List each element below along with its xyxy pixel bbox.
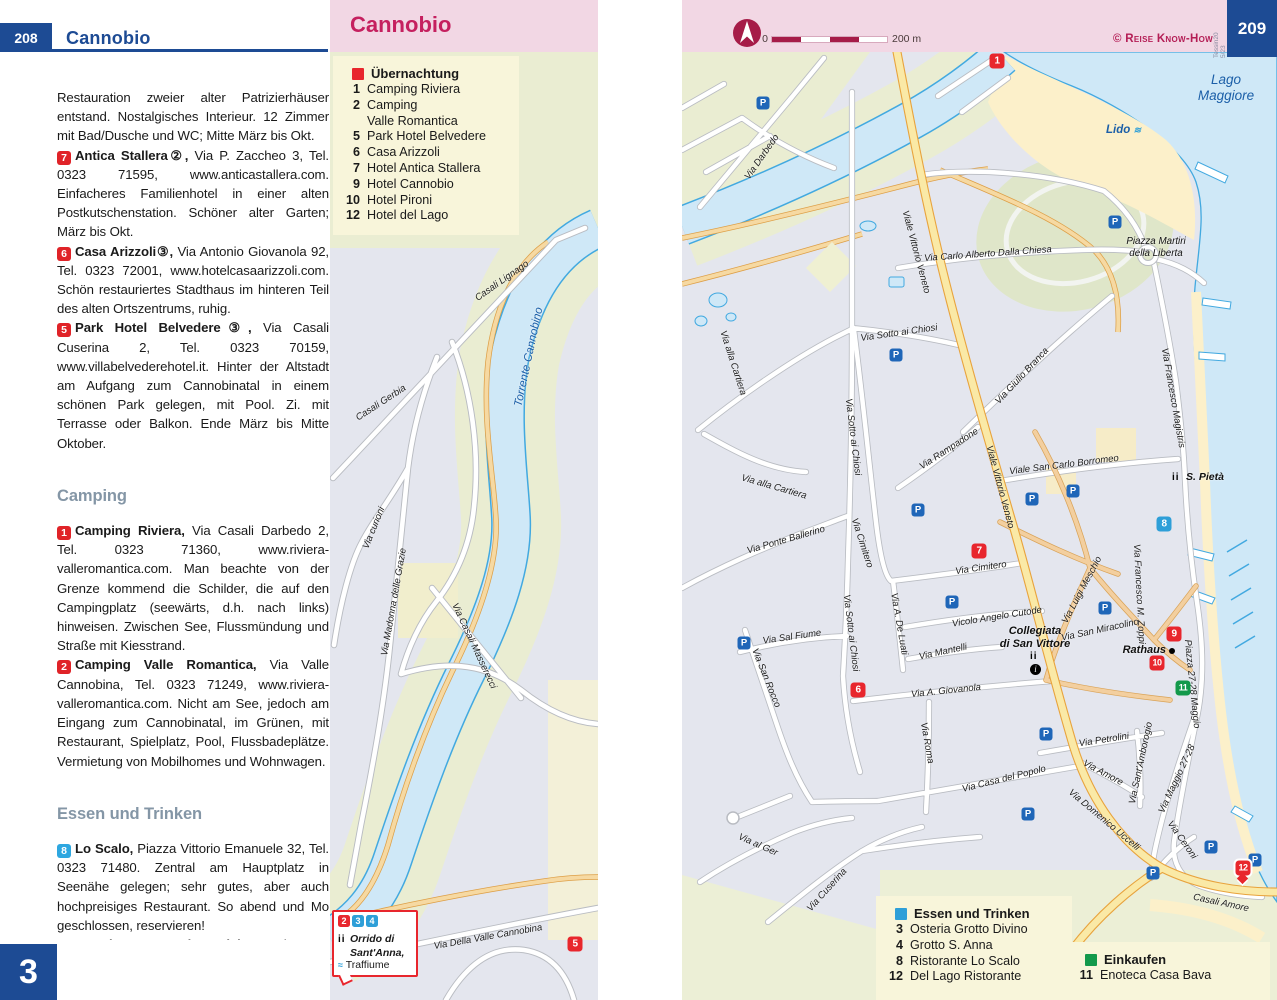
accommodation-color-swatch xyxy=(352,68,364,80)
legend-item: 3Osteria Grotto Divino xyxy=(876,922,1072,938)
parking-icon: P xyxy=(1026,493,1039,506)
sight-icon: ii xyxy=(338,934,346,945)
scale-zero-label: 0 xyxy=(752,33,768,45)
map-marker: 9 xyxy=(1167,627,1182,642)
legend-item-number: 4 xyxy=(876,938,903,954)
legend-item: 6Casa Arizzoli xyxy=(333,145,519,161)
callout-line3: ≈ Traffiume xyxy=(338,959,412,971)
legend-item-number: 3 xyxy=(876,922,903,938)
legend-accommodation: Übernachtung 1Camping Riviera2Camping Va… xyxy=(333,56,519,235)
parking-icon: P xyxy=(1109,216,1122,229)
callout-marker-badge: 4 xyxy=(366,915,378,927)
parking-icon: P xyxy=(1067,485,1080,498)
waterfall-icon: ≈ xyxy=(338,960,343,970)
parking-icon: P xyxy=(912,504,925,517)
parking-icon: P xyxy=(1099,602,1112,615)
legend-item-number: 1 xyxy=(333,82,360,98)
legend-item: 7Hotel Antica Stallera xyxy=(333,161,519,177)
legend-shopping: Einkaufen 11Enoteca Casa Bava xyxy=(1044,942,1270,1000)
legend-item: 10Hotel Pironi xyxy=(333,193,519,209)
legend-item: 4Grotto S. Anna xyxy=(876,938,1072,954)
legend-item-label: Hotel Cannobio xyxy=(367,177,454,193)
legend-food: Essen und Trinken 3Osteria Grotto Divino… xyxy=(876,896,1072,1000)
parking-icon: P xyxy=(1205,841,1218,854)
map-marker: 10 xyxy=(1150,656,1165,671)
legend-accommodation-title: Übernachtung xyxy=(333,66,519,82)
legend-item-label: Hotel Antica Stallera xyxy=(367,161,480,177)
scale-distance-label: 200 m xyxy=(892,33,921,45)
church-icon: ii xyxy=(1030,651,1038,662)
legend-item-number: 12 xyxy=(876,969,903,985)
map-marker: 5 xyxy=(568,937,583,952)
parking-icon: P xyxy=(757,97,770,110)
s-pieta-label: S. Pietà xyxy=(1186,471,1224,483)
legend-item: 1Camping Riviera xyxy=(333,82,519,98)
legend-item-label: Hotel del Lago xyxy=(367,208,448,224)
info-icon: i xyxy=(1030,664,1041,675)
map-marker: 7 xyxy=(972,544,987,559)
swimmer-icon: ≋ xyxy=(1133,125,1141,135)
legend-item: 12Hotel del Lago xyxy=(333,208,519,224)
legend-item-number: 9 xyxy=(333,177,360,193)
callout-line2: Sant'Anna, xyxy=(338,947,412,959)
callout-line1: Orrido di xyxy=(350,933,394,945)
edition-note: Tessin20 5/23 xyxy=(1213,32,1227,58)
parking-icon: P xyxy=(1040,728,1053,741)
legend-item-number: 12 xyxy=(333,208,360,224)
scale-bar xyxy=(772,37,887,43)
food-color-swatch xyxy=(895,908,907,920)
legend-item: 5Park Hotel Belvedere xyxy=(333,129,519,145)
legend-item: 9Hotel Cannobio xyxy=(333,177,519,193)
guidebook-spread: 208 Cannobio 3 Cannobio 0 200 m © Reise … xyxy=(0,0,1277,1000)
page-number-right: 209 xyxy=(1227,0,1277,57)
legend-item-label: Osteria Grotto Divino xyxy=(910,922,1028,938)
legend-item: 11Enoteca Casa Bava xyxy=(1044,968,1270,984)
piazza-martiri-label: Piazza Martiri della Liberta xyxy=(1120,236,1192,259)
parking-icon: P xyxy=(946,596,959,609)
legend-item: 8Ristorante Lo Scalo xyxy=(876,954,1072,970)
legend-item-number: 2 xyxy=(333,98,360,130)
legend-item-number: 10 xyxy=(333,193,360,209)
map-title: Cannobio xyxy=(350,12,451,38)
legend-item-number: 7 xyxy=(333,161,360,177)
callout-marker-badge: 2 xyxy=(338,915,350,927)
map-marker: 12 xyxy=(1236,861,1251,876)
parking-icon: P xyxy=(1147,867,1160,880)
legend-item-label: Hotel Pironi xyxy=(367,193,432,209)
legend-item-label: Ristorante Lo Scalo xyxy=(910,954,1020,970)
legend-food-title: Essen und Trinken xyxy=(876,906,1072,922)
legend-item-label: Camping Riviera xyxy=(367,82,460,98)
legend-item-label: Enoteca Casa Bava xyxy=(1100,968,1211,984)
legend-item: 12Del Lago Ristorante xyxy=(876,969,1072,985)
map-marker: 1 xyxy=(990,54,1005,69)
orrido-callout: 234 ii Orrido di Sant'Anna, ≈ Traffiume xyxy=(332,910,418,977)
parking-icon: P xyxy=(1022,808,1035,821)
rathaus-label: Rathaus xyxy=(1108,644,1166,656)
rathaus-dot xyxy=(1169,648,1175,654)
map-marker: 11 xyxy=(1176,681,1191,696)
legend-item-number: 11 xyxy=(1066,968,1093,984)
church-icon: ii xyxy=(1172,472,1180,483)
shopping-color-swatch xyxy=(1085,954,1097,966)
parking-icon: P xyxy=(738,637,751,650)
map-canvas xyxy=(0,0,1277,1000)
map-marker: 8 xyxy=(1157,517,1172,532)
legend-item: 2Camping Valle Romantica xyxy=(333,98,519,130)
legend-item-label: Del Lago Ristorante xyxy=(910,969,1021,985)
map-marker: 6 xyxy=(851,683,866,698)
lido-label: Lido ≋ xyxy=(1106,124,1141,136)
legend-item-number: 5 xyxy=(333,129,360,145)
legend-item-label: Camping Valle Romantica xyxy=(367,98,458,130)
legend-item-number: 8 xyxy=(876,954,903,970)
copyright-credit: © Reise Know-How xyxy=(1040,33,1213,45)
legend-item-label: Grotto S. Anna xyxy=(910,938,993,954)
parking-icon: P xyxy=(890,349,903,362)
legend-shopping-title: Einkaufen xyxy=(1044,952,1270,968)
legend-item-number: 6 xyxy=(333,145,360,161)
legend-item-label: Park Hotel Belvedere xyxy=(367,129,486,145)
lake-label: Lago Maggiore xyxy=(1180,72,1272,103)
callout-marker-badge: 3 xyxy=(352,915,364,927)
legend-item-label: Casa Arizzoli xyxy=(367,145,440,161)
